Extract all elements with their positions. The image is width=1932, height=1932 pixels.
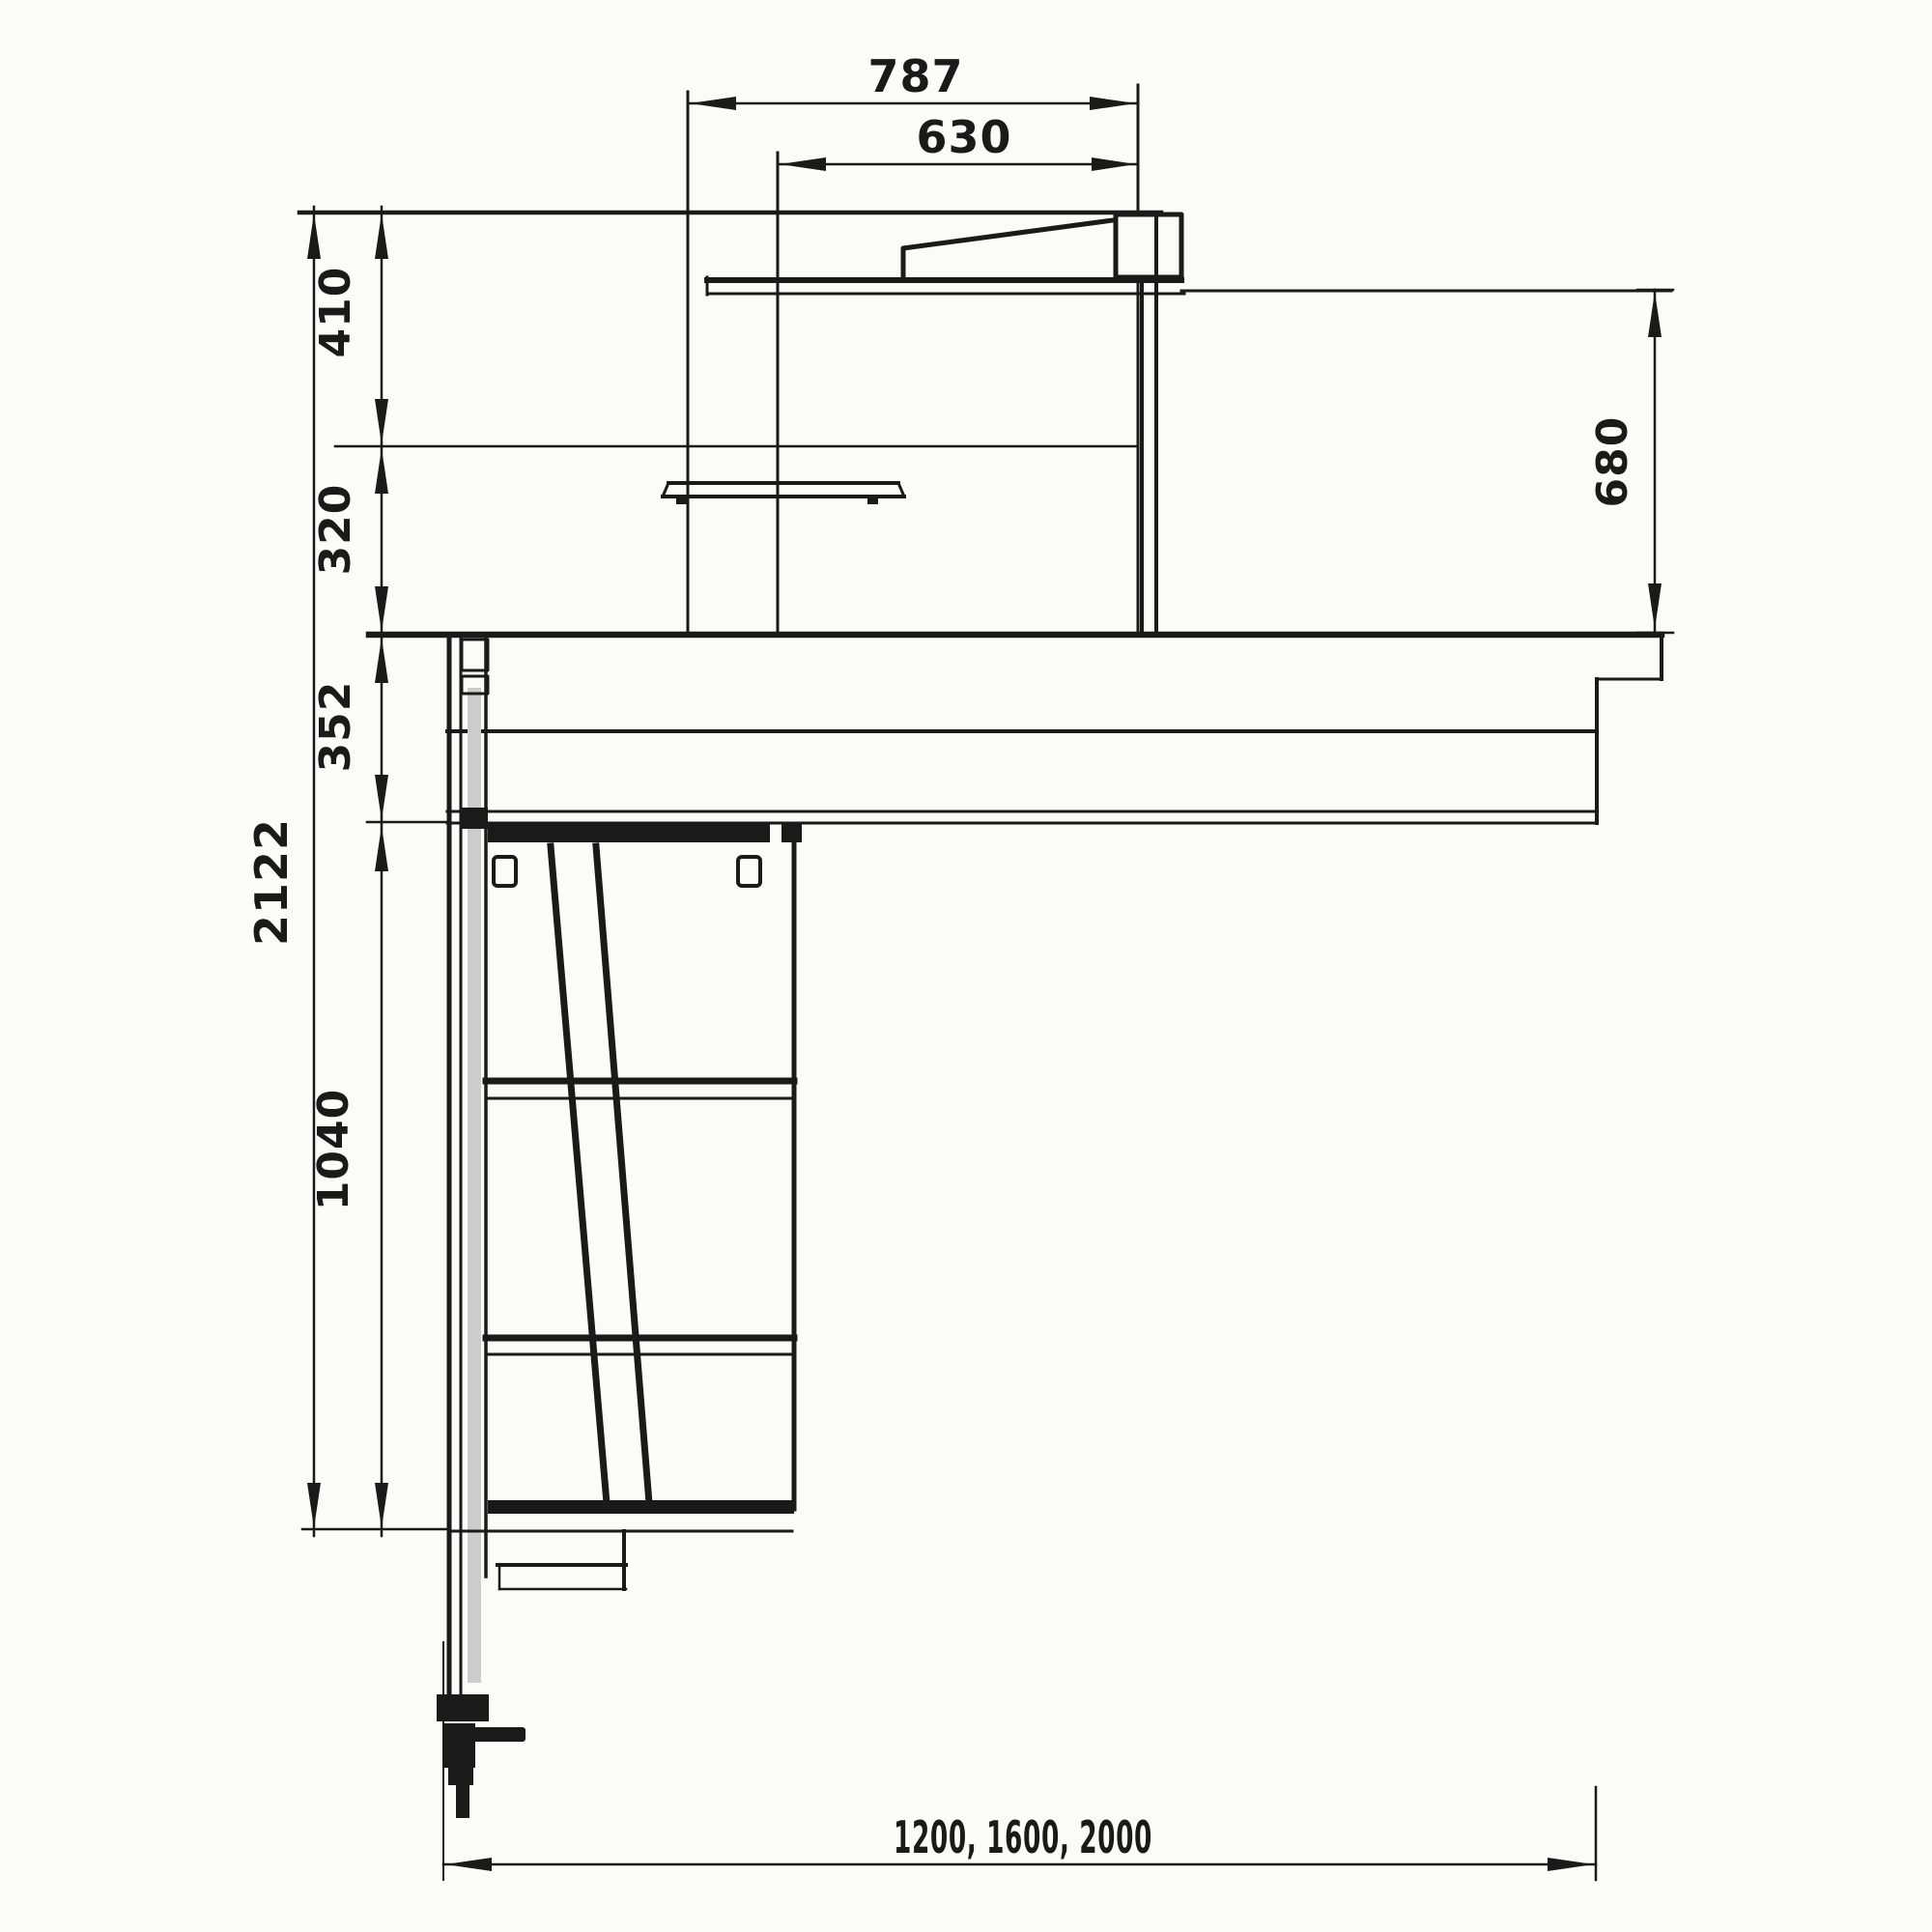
dim-width-label: 1200, 1600, 2000 <box>894 1811 1152 1863</box>
foot-clamp-block <box>437 1694 489 1721</box>
foot-pedal <box>473 1727 526 1742</box>
dim-2122: 2122 <box>245 207 321 1536</box>
dim-410-label: 410 <box>311 267 360 358</box>
dim-width-arrow-right <box>1548 1858 1594 1871</box>
dim-787: 787 <box>688 50 1138 110</box>
register-head-box <box>1116 214 1181 277</box>
dim-2122-arrow-top <box>307 213 321 259</box>
dim-410-arrow-bottom <box>375 399 388 444</box>
dim-320-arrow-top <box>375 448 388 494</box>
dim-2122-arrow-bottom <box>307 1483 321 1528</box>
dim-680: 680 <box>1588 290 1673 633</box>
dim-630-label: 630 <box>916 111 1011 163</box>
foot-body-block <box>442 1723 475 1768</box>
dim-787-arrow-left <box>690 97 736 110</box>
dim-630-arrow-left <box>780 157 826 171</box>
cabinet-top-rail <box>488 824 770 842</box>
dim-410-arrow-top <box>375 213 388 259</box>
dim-320-arrow-bottom <box>375 586 388 632</box>
case-tray-right-cap <box>898 483 904 497</box>
dim-352-label: 352 <box>311 681 360 773</box>
dim-1040-arrow-top <box>375 826 388 871</box>
post-channel-shade <box>468 688 481 1683</box>
dim-680-arrow-bottom <box>1648 583 1662 629</box>
structure <box>299 85 1671 1818</box>
technical-drawing: 787 630 2122 <box>0 0 1932 1932</box>
dim-1040-label: 1040 <box>309 1089 358 1210</box>
foot-neck <box>448 1768 473 1785</box>
dim-352-arrow-top <box>375 638 388 683</box>
dim-630: 630 <box>778 111 1138 171</box>
cabinet-top-rail-end <box>781 824 802 842</box>
sloped-wedge <box>903 220 1113 279</box>
drawing-sheet: 787 630 2122 <box>0 0 1932 1932</box>
cabinet-clip-left <box>494 857 516 886</box>
dim-1040-arrow-bottom <box>375 1483 388 1528</box>
dim-680-label: 680 <box>1588 416 1637 508</box>
dim-width: 1200, 1600, 2000 <box>443 1642 1596 1880</box>
case-tray-left-cap <box>663 483 668 497</box>
case-tray-foot-left <box>676 497 687 504</box>
cabinet-strut-b <box>596 846 649 1503</box>
dim-787-arrow-right <box>1090 97 1136 110</box>
dim-630-arrow-right <box>1092 157 1136 171</box>
dim-2122-label: 2122 <box>245 818 298 946</box>
case-tray-foot-right <box>867 497 878 504</box>
cabinet-strut-a <box>551 846 607 1503</box>
dim-352-arrow-bottom <box>375 775 388 820</box>
post-block <box>461 808 488 829</box>
cabinet-bottom-bar <box>488 1500 794 1514</box>
cabinet-clip-right <box>738 857 760 886</box>
dim-680-arrow-top <box>1648 292 1662 337</box>
foot-stem <box>456 1785 469 1818</box>
dim-320-label: 320 <box>311 484 360 576</box>
post-bracket-upper <box>462 639 488 670</box>
dim-width-arrow-left <box>445 1858 492 1871</box>
dim-787-label: 787 <box>867 50 963 102</box>
